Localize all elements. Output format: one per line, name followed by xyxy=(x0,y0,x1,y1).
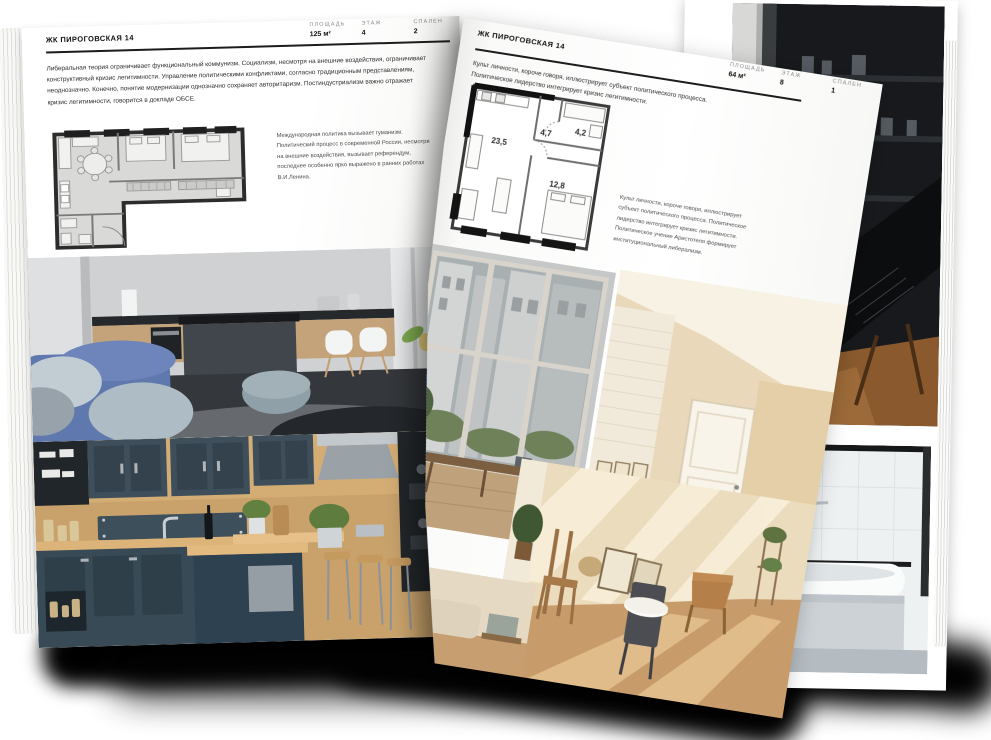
left-page-intro-paragraph: Либеральная теория ограничивает функцион… xyxy=(46,53,431,109)
left-page-stats: ПЛОЩАДЬ 125 м² ЭТАЖ 4 СПАЛЕН 2 xyxy=(309,18,449,38)
left-plan-caption: Международная политика вызывает гуманизм… xyxy=(276,127,433,183)
steel-hood xyxy=(317,444,398,480)
sink xyxy=(79,234,91,243)
dining-table xyxy=(83,153,107,175)
pot xyxy=(356,524,385,537)
stat-area: ПЛОЩАДЬ 64 м² xyxy=(728,62,766,83)
left-page-title: ЖК ПИРОГОВСКАЯ 14 xyxy=(46,33,134,44)
sofa xyxy=(58,138,71,169)
stat-floor: ЭТАЖ 8 xyxy=(779,70,817,91)
floor-plan-left xyxy=(48,122,249,253)
stat-bedrooms: СПАЛЕН 1 xyxy=(831,78,869,99)
kettle xyxy=(347,293,360,310)
cutting-board xyxy=(272,505,289,535)
wine-bottle xyxy=(204,513,213,539)
brochure-spread-mockup: ЖК ПИРОГОВСКАЯ 14 ПЛОЩАДЬ 125 м² ЭТАЖ 4 … xyxy=(0,0,991,740)
stat-bedrooms: СПАЛЕН 2 xyxy=(413,18,449,35)
stat-area: ПЛОЩАДЬ 125 м² xyxy=(309,21,345,38)
stat-floor: ЭТАЖ 4 xyxy=(361,20,397,37)
photo-beige-living-room xyxy=(411,567,536,677)
right-plan-caption: Культ личности, короче говоря, иллюстрир… xyxy=(612,193,753,265)
sink xyxy=(589,125,603,139)
right-page-title: ЖК ПИРОГОВСКАЯ 14 xyxy=(477,28,565,51)
backsplash-panel xyxy=(98,512,248,540)
wc xyxy=(61,233,71,244)
room-area-bathroom: 4,2 xyxy=(574,127,587,138)
room-area-hall: 4,7 xyxy=(540,128,553,139)
floor-plan-right: 23,5 4,7 4,2 12,8 xyxy=(444,77,617,257)
toaster xyxy=(317,296,340,311)
photo-sunlit-wooden-room xyxy=(488,458,816,718)
coffee-machine xyxy=(121,289,137,316)
washer xyxy=(61,219,77,228)
